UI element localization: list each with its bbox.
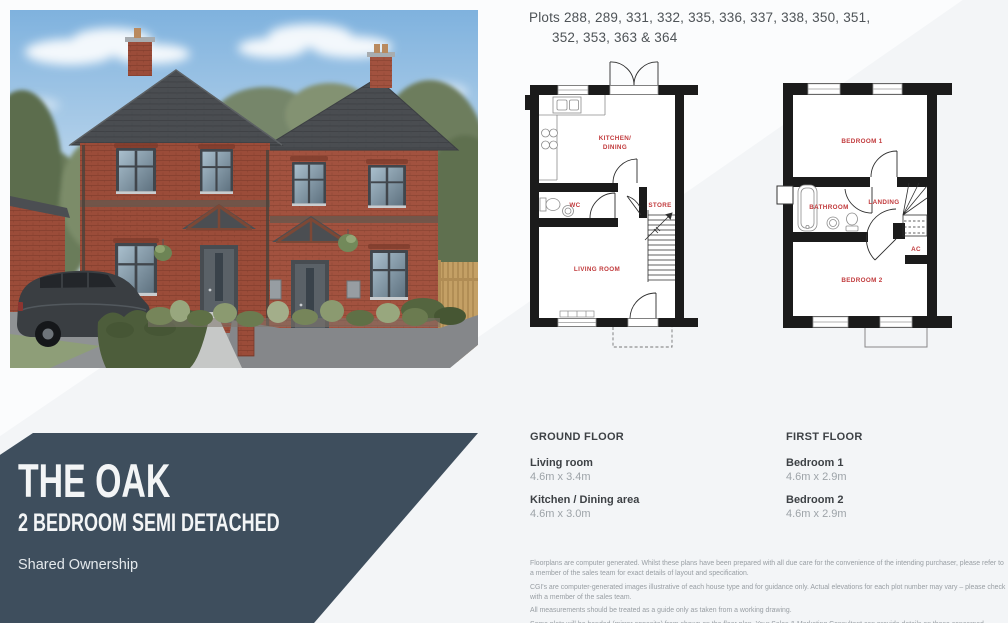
left-house-upper-window-2 xyxy=(200,149,233,194)
disclaimer-paragraph: Floorplans are computer generated. Whils… xyxy=(530,559,1008,580)
spec-room-name: Bedroom 2 xyxy=(786,493,1006,507)
spec-item: Bedroom 2 4.6m x 2.9m xyxy=(786,493,1006,521)
room-label-landing: LANDING xyxy=(868,199,899,206)
plots-line2: 352, 353, 363 & 364 xyxy=(529,28,870,48)
room-label-ac: AC xyxy=(911,246,921,253)
spec-item: Living room 4.6m x 3.4m xyxy=(530,456,750,484)
first-floor-specs: FIRST FLOOR Bedroom 1 4.6m x 2.9m Bedroo… xyxy=(786,431,1006,530)
disclaimer: Floorplans are computer generated. Whils… xyxy=(530,559,1008,623)
disclaimer-paragraph: CGI's are computer-generated images illu… xyxy=(530,583,1008,604)
spec-room-size: 4.6m x 3.4m xyxy=(530,470,750,484)
spec-item: Bedroom 1 4.6m x 2.9m xyxy=(786,456,1006,484)
ground-floor-plan: KITCHEN/ DINING WC STORE LIVING ROOM xyxy=(523,52,708,352)
house-type-subtitle: 2 BEDROOM SEMI DETACHED xyxy=(18,510,280,536)
spec-item: Kitchen / Dining area 4.6m x 3.0m xyxy=(530,493,750,521)
room-label-kitchen-2: DINING xyxy=(603,144,627,151)
house-type-banner: THE OAK 2 BEDROOM SEMI DETACHED Shared O… xyxy=(0,433,478,623)
ground-floor-specs-heading: GROUND FLOOR xyxy=(530,431,750,443)
first-floor-plan: BEDROOM 1 BATHROOM LANDING AC BEDROOM 2 xyxy=(773,52,973,352)
porch-canopy-outline xyxy=(613,327,672,347)
spec-room-name: Bedroom 1 xyxy=(786,456,1006,470)
spec-room-size: 4.6m x 2.9m xyxy=(786,470,1006,484)
spec-room-size: 4.6m x 3.0m xyxy=(530,507,750,521)
spec-room-name: Living room xyxy=(530,456,750,470)
radiator xyxy=(560,311,594,317)
room-label-kitchen-1: KITCHEN/ xyxy=(599,135,632,142)
tenure-label: Shared Ownership xyxy=(18,557,381,573)
ground-floor-specs: GROUND FLOOR Living room 4.6m x 3.4m Kit… xyxy=(530,431,750,530)
room-label-bedroom2: BEDROOM 2 xyxy=(841,277,882,284)
house-photo xyxy=(10,10,478,368)
banner-content: THE OAK 2 BEDROOM SEMI DETACHED Shared O… xyxy=(18,457,381,573)
room-label-bathroom: BATHROOM xyxy=(809,204,848,211)
plots-heading: Plots 288, 289, 331, 332, 335, 336, 337,… xyxy=(529,8,870,48)
room-label-wc: WC xyxy=(569,202,580,209)
spec-room-size: 4.6m x 2.9m xyxy=(786,507,1006,521)
room-label-living-room: LIVING ROOM xyxy=(574,266,620,273)
right-house-upper-window-1 xyxy=(292,162,326,206)
right-house-upper-window-2 xyxy=(368,165,406,208)
left-house-upper-window-1 xyxy=(116,148,156,194)
right-house-lower-window xyxy=(370,250,408,300)
room-label-bedroom1: BEDROOM 1 xyxy=(841,138,882,145)
downpipe xyxy=(266,150,269,333)
plots-line1: Plots 288, 289, 331, 332, 335, 336, 337,… xyxy=(529,8,870,28)
brochure-page: Plots 288, 289, 331, 332, 335, 336, 337,… xyxy=(0,0,1008,623)
house-type-title: THE OAK xyxy=(18,457,280,505)
canopy-roof-outline xyxy=(865,328,927,347)
spec-room-name: Kitchen / Dining area xyxy=(530,493,750,507)
disclaimer-paragraph: All measurements should be treated as a … xyxy=(530,606,1008,616)
room-label-store: STORE xyxy=(648,202,671,209)
first-floor-specs-heading: FIRST FLOOR xyxy=(786,431,1006,443)
house-photo-illustration xyxy=(10,10,478,368)
